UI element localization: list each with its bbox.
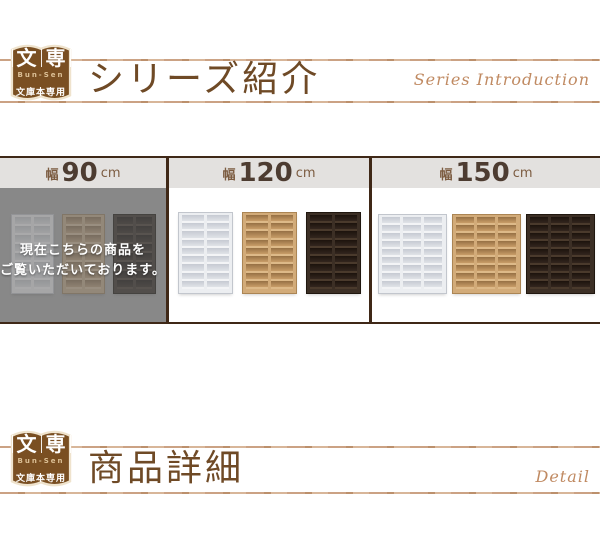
shelf-row <box>169 188 369 293</box>
width-label: 幅 <box>45 164 58 183</box>
width-value: 150 <box>455 158 509 188</box>
width-header-120cm[interactable]: 幅 120 cm <box>169 158 369 188</box>
logo-kanji: 文専 <box>12 47 71 69</box>
panel-body-90cm: 現在こちらの商品を ご覧いただいております。 <box>0 188 166 322</box>
logo-content: 文専 Bun-Sen 文庫本専用 <box>10 41 72 105</box>
bookshelf-white-120cm <box>179 213 232 293</box>
logo-content: 文専 Bun-Sen 文庫本専用 <box>10 427 72 491</box>
logo-bar <box>70 49 71 67</box>
bookshelf-dark-brown-150cm <box>527 215 594 293</box>
page: 文専 Bun-Sen 文庫本専用 シリーズ紹介 Series Introduct… <box>0 0 600 545</box>
overlay-text-line2: ご覧いただいております。 <box>0 261 166 281</box>
width-label: 幅 <box>439 164 452 183</box>
size-panel-150cm[interactable]: 幅 150 cm <box>372 158 600 322</box>
size-selector: 幅 90 cm 現在こちらの商品を ご覧いただいております。 幅 120 <box>0 156 600 324</box>
decorative-line-bottom <box>0 492 600 494</box>
bookshelf-natural-120cm <box>243 213 296 293</box>
width-unit: cm <box>101 166 121 181</box>
detail-section: 文専 Bun-Sen 文庫本専用 商品詳細 Detail <box>0 324 600 545</box>
logo-bar <box>41 49 42 67</box>
size-panel-90cm: 幅 90 cm 現在こちらの商品を ご覧いただいております。 <box>0 158 166 322</box>
logo-caption: 文庫本専用 <box>16 471 66 484</box>
width-value: 120 <box>238 158 292 188</box>
bookshelf-natural-150cm <box>453 215 520 293</box>
bookshelf-white-150cm <box>379 215 446 293</box>
bookshelf-dark-brown-120cm <box>307 213 360 293</box>
logo-kanji: 文専 <box>12 433 71 455</box>
logo-caption: 文庫本専用 <box>16 85 66 98</box>
width-value: 90 <box>62 158 98 188</box>
bunsen-logo-badge: 文専 Bun-Sen 文庫本専用 <box>10 427 72 491</box>
width-header-150cm[interactable]: 幅 150 cm <box>372 158 600 188</box>
size-panel-120cm[interactable]: 幅 120 cm <box>169 158 369 322</box>
logo-bar <box>12 49 13 67</box>
logo-romaji: Bun-Sen <box>18 71 65 79</box>
series-intro-subtitle-script: Series Introduction <box>414 70 590 89</box>
width-unit: cm <box>513 166 533 181</box>
decorative-line-bottom <box>0 101 600 103</box>
detail-subtitle-script: Detail <box>536 467 591 486</box>
detail-title: 商品詳細 <box>88 448 244 490</box>
series-intro-section: 文専 Bun-Sen 文庫本専用 シリーズ紹介 Series Introduct… <box>0 0 600 156</box>
shelf-row <box>372 188 600 293</box>
logo-bar <box>41 435 42 453</box>
series-intro-title: シリーズ紹介 <box>88 59 320 101</box>
logo-romaji: Bun-Sen <box>18 457 65 465</box>
width-label: 幅 <box>222 164 235 183</box>
current-item-overlay: 現在こちらの商品を ご覧いただいております。 <box>0 188 166 322</box>
width-header-90cm: 幅 90 cm <box>0 158 166 188</box>
logo-bar <box>12 435 13 453</box>
panel-body-120cm[interactable] <box>169 188 369 322</box>
panel-body-150cm[interactable] <box>372 188 600 322</box>
logo-bar <box>70 435 71 453</box>
bunsen-logo-badge: 文専 Bun-Sen 文庫本専用 <box>10 41 72 105</box>
overlay-text-line1: 現在こちらの商品を <box>20 241 146 261</box>
width-unit: cm <box>296 166 316 181</box>
